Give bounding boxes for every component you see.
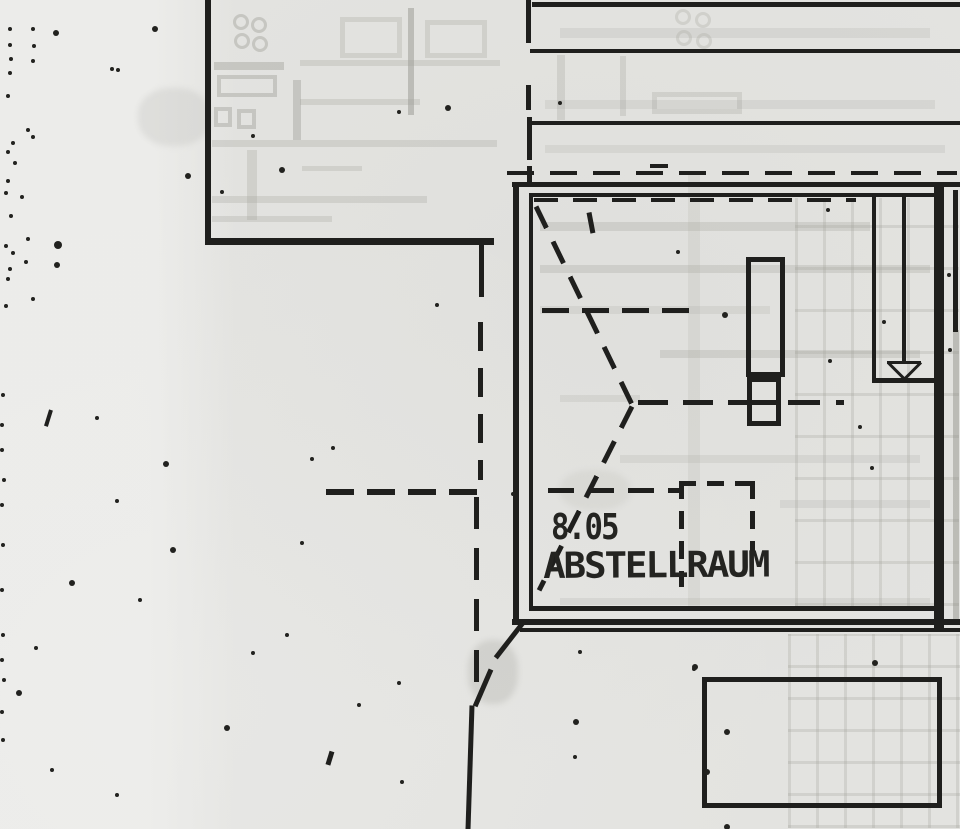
ghost-line bbox=[214, 62, 284, 70]
scan-dot bbox=[0, 658, 4, 662]
scan-dot bbox=[1, 738, 5, 742]
section-dashed-vertical bbox=[478, 322, 483, 480]
ghost-streak bbox=[660, 350, 920, 358]
scan-dot bbox=[6, 150, 10, 154]
scan-dot bbox=[50, 768, 54, 772]
scan-dot bbox=[279, 167, 285, 173]
scan-dot bbox=[9, 57, 13, 61]
scan-dot bbox=[285, 633, 289, 637]
scan-dot bbox=[882, 320, 886, 324]
room-wall-top-outer bbox=[512, 182, 960, 187]
scan-dot bbox=[53, 30, 59, 36]
scan-dot bbox=[16, 690, 22, 696]
scan-dot bbox=[138, 598, 142, 602]
ghost-crease bbox=[688, 172, 700, 608]
scan-dot bbox=[31, 135, 35, 139]
scan-dot bbox=[724, 729, 730, 735]
dashed-line-inside bbox=[548, 488, 684, 493]
ghost-line bbox=[212, 140, 497, 147]
chimney-base-divider bbox=[747, 400, 781, 405]
scan-dot bbox=[31, 297, 35, 301]
scan-dot bbox=[400, 780, 404, 784]
ceiling-dash-down bbox=[534, 205, 634, 405]
scan-dot bbox=[24, 260, 28, 264]
scan-dot bbox=[251, 134, 255, 138]
room-wall-left-inner bbox=[529, 193, 533, 608]
scan-dot bbox=[948, 348, 952, 352]
center-dashed-line bbox=[788, 400, 844, 405]
ghost-line bbox=[557, 55, 565, 120]
scan-dot bbox=[54, 241, 62, 249]
scan-dot bbox=[115, 793, 119, 797]
ghost-line bbox=[300, 60, 500, 66]
ghost-circle bbox=[252, 36, 268, 52]
stair-bottom-line bbox=[872, 378, 936, 383]
scan-dot bbox=[397, 110, 401, 114]
scan-dot bbox=[170, 547, 176, 553]
lower-rect bbox=[702, 677, 942, 808]
ghost-circle bbox=[234, 33, 250, 49]
scan-dot bbox=[8, 43, 12, 47]
scan-dot bbox=[20, 195, 24, 199]
edge-wall-line bbox=[953, 190, 958, 332]
eaves-dashed-line bbox=[507, 171, 957, 175]
scan-dot bbox=[558, 101, 562, 105]
scan-dot bbox=[251, 651, 255, 655]
scan-dot bbox=[8, 71, 12, 75]
ghost-line bbox=[212, 196, 427, 203]
scan-dot bbox=[2, 478, 6, 482]
scan-dot bbox=[0, 588, 4, 592]
tick-mark bbox=[326, 750, 335, 764]
ghost-circle bbox=[233, 14, 249, 30]
scan-dot bbox=[0, 503, 4, 507]
scan-dot bbox=[397, 681, 401, 685]
scan-dot bbox=[724, 824, 730, 829]
stair-side-line bbox=[872, 193, 876, 381]
ghost-rect bbox=[214, 107, 232, 127]
scan-dot bbox=[676, 250, 680, 254]
scan-dot bbox=[34, 646, 38, 650]
scan-dot bbox=[11, 141, 15, 145]
scan-dot bbox=[26, 128, 30, 132]
ghost-line bbox=[302, 166, 362, 171]
scan-dot bbox=[722, 312, 728, 318]
scan-dot bbox=[573, 755, 577, 759]
dashed-line-outside bbox=[326, 489, 489, 495]
ghost-line bbox=[212, 216, 332, 222]
ghost-band bbox=[560, 28, 930, 38]
scan-dot bbox=[692, 664, 698, 670]
scan-dot bbox=[9, 214, 13, 218]
room-wall-left-outer bbox=[513, 182, 519, 622]
boundary-dash bbox=[526, 85, 531, 110]
ghost-line bbox=[247, 150, 257, 220]
section-dashed-vertical bbox=[474, 497, 479, 697]
scan-dot bbox=[26, 237, 30, 241]
scan-dot bbox=[357, 703, 361, 707]
scan-dot bbox=[1, 543, 5, 547]
stray-dash bbox=[650, 164, 668, 168]
wall-stub bbox=[479, 245, 484, 297]
scan-dot bbox=[828, 359, 832, 363]
ghost-rect bbox=[237, 109, 256, 129]
room-wall-bottom-outer2 bbox=[520, 628, 960, 632]
scan-dot bbox=[54, 262, 60, 268]
scan-dot bbox=[573, 719, 579, 725]
ghost-line bbox=[300, 99, 420, 105]
scan-dot bbox=[947, 273, 951, 277]
scan-dot bbox=[163, 461, 169, 467]
ghost-circle bbox=[675, 9, 691, 25]
scan-dot bbox=[4, 191, 8, 195]
ghost-streak bbox=[620, 455, 920, 463]
boundary-dash bbox=[527, 117, 532, 160]
scan-dot bbox=[704, 769, 710, 775]
drawing-layer bbox=[0, 0, 960, 829]
ghost-rect bbox=[217, 75, 277, 97]
scan-dot bbox=[435, 303, 439, 307]
ghost-rect bbox=[340, 17, 402, 58]
scan-dot bbox=[31, 27, 35, 31]
scan-dot bbox=[32, 44, 36, 48]
center-dashed-line bbox=[638, 400, 748, 405]
ghost-line bbox=[293, 80, 301, 140]
scan-dot bbox=[1, 633, 5, 637]
scan-dot bbox=[11, 251, 15, 255]
scan-dot bbox=[872, 660, 878, 666]
smudge bbox=[138, 88, 210, 146]
upper-left-wall-horizontal bbox=[205, 238, 494, 245]
boundary-dash bbox=[526, 0, 531, 43]
scan-dot bbox=[300, 541, 304, 545]
scan-dot bbox=[220, 190, 224, 194]
stair-arrow-top bbox=[887, 361, 921, 364]
scan-dot bbox=[8, 27, 12, 31]
ghost-rect bbox=[425, 20, 487, 58]
scan-dot bbox=[870, 466, 874, 470]
scan-dot bbox=[4, 304, 8, 308]
scan-dot bbox=[185, 173, 191, 179]
ghost-band bbox=[545, 100, 935, 109]
dashed-square-right bbox=[750, 481, 755, 551]
scan-dot bbox=[445, 105, 451, 111]
scan-dot bbox=[310, 457, 314, 461]
scan-dot bbox=[858, 425, 862, 429]
dashed-square-top bbox=[679, 481, 755, 486]
scan-dot bbox=[13, 161, 17, 165]
scan-dot bbox=[110, 67, 114, 71]
scan-dot bbox=[2, 678, 6, 682]
scan-dot bbox=[0, 710, 4, 714]
scan-dot bbox=[578, 650, 582, 654]
scan-dot bbox=[826, 208, 830, 212]
room-name-label: ABSTELLRAUM bbox=[543, 547, 768, 585]
scan-dot bbox=[0, 423, 4, 427]
scan-dot bbox=[1, 393, 5, 397]
top-wall-line-2 bbox=[530, 49, 960, 53]
top-wall-line-3 bbox=[530, 121, 960, 125]
chimney-rect bbox=[746, 257, 785, 377]
room-number-label: 8.05 bbox=[551, 510, 618, 546]
scan-dot bbox=[152, 26, 158, 32]
scan-dot bbox=[331, 446, 335, 450]
dashed-line-mid bbox=[542, 308, 689, 313]
scan-dot bbox=[224, 725, 230, 731]
stair-center-line bbox=[902, 193, 906, 363]
section-line-solid bbox=[466, 705, 475, 829]
tick-mark bbox=[44, 409, 53, 426]
scan-dot bbox=[0, 448, 4, 452]
ghost-streak bbox=[560, 598, 930, 605]
scan-dot bbox=[95, 416, 99, 420]
scan-dot bbox=[6, 179, 10, 183]
scan-dot bbox=[511, 492, 515, 496]
scan-dot bbox=[31, 59, 35, 63]
room-wall-bottom-outer bbox=[512, 619, 960, 625]
scan-dot bbox=[6, 277, 10, 281]
edge-wall-ghost bbox=[953, 330, 959, 625]
scan-dot bbox=[6, 94, 10, 98]
room-wall-bottom-inner bbox=[529, 606, 935, 611]
room-wall-right bbox=[934, 182, 944, 632]
floorplan-scan-canvas: 8.05 ABSTELLRAUM bbox=[0, 0, 960, 829]
scan-dot bbox=[69, 580, 75, 586]
ghost-line bbox=[620, 56, 626, 116]
scan-dot bbox=[8, 267, 12, 271]
scan-dot bbox=[4, 244, 8, 248]
ghost-circle bbox=[695, 12, 711, 28]
upper-left-wall-vertical bbox=[205, 0, 211, 244]
ghost-streak bbox=[780, 500, 930, 508]
top-wall-line-1 bbox=[532, 2, 960, 7]
ghost-band bbox=[545, 145, 945, 153]
scan-dot bbox=[115, 499, 119, 503]
inner-top-dashed bbox=[534, 198, 856, 202]
ghost-circle bbox=[251, 17, 267, 33]
scan-dot bbox=[116, 68, 120, 72]
